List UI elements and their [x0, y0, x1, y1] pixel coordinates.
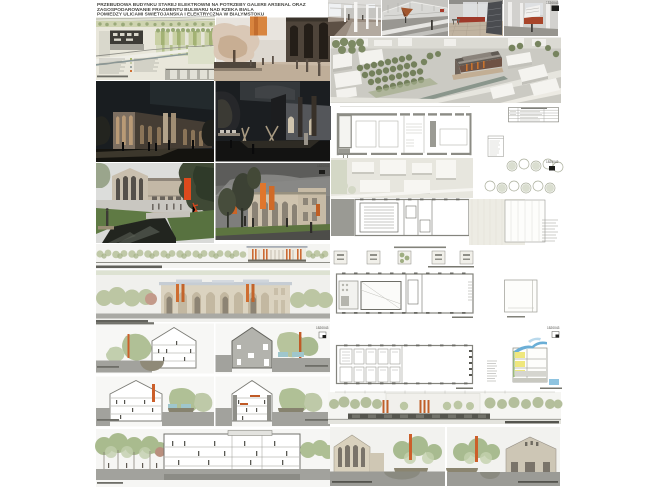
svg-text:1520043: 1520043 [546, 1, 559, 5]
svg-text:1520043: 1520043 [547, 326, 560, 330]
svg-text:1520043: 1520043 [317, 164, 330, 168]
svg-text:1520043: 1520043 [316, 326, 329, 330]
svg-text:1520043: 1520043 [546, 160, 559, 164]
svg-text:POMIEDZY ULICAMI SWIETOJANSKA: POMIEDZY ULICAMI SWIETOJANSKA I ELEKTRYC… [97, 12, 265, 18]
